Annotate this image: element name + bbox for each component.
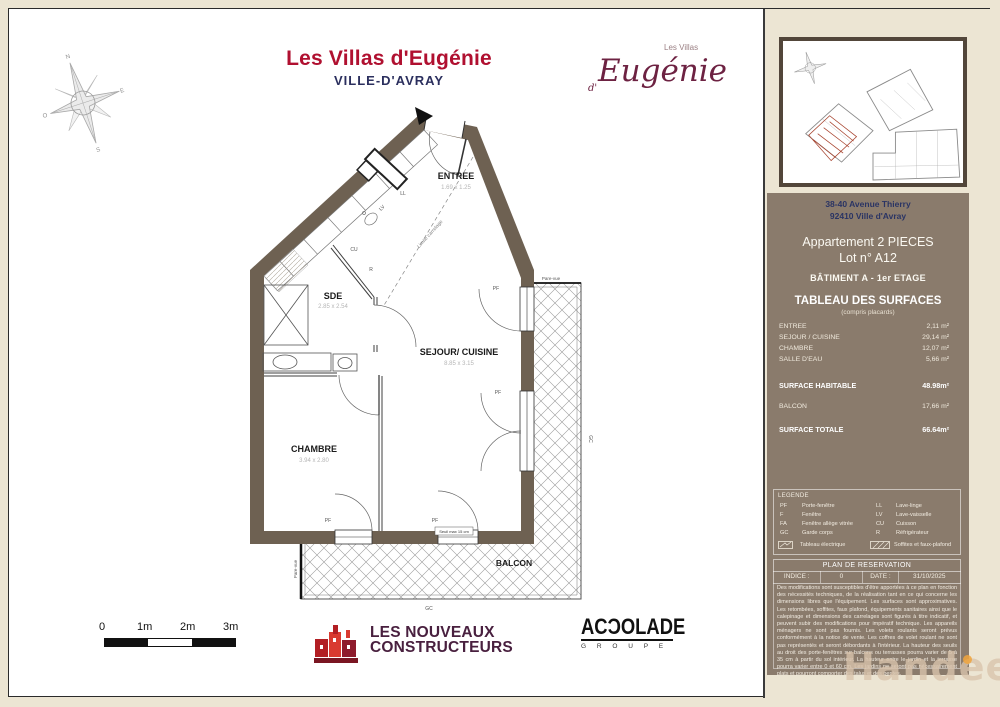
lnc-logo: LES NOUVEAUX CONSTRUCTEURS [312,621,542,677]
row-value: 5,66 m² [926,356,949,363]
accolade-wordmark: ACƆOLADE [581,615,677,641]
residence-title: Les Villas d'Eugénie [259,47,519,71]
room-sde: SDE [324,291,343,301]
accolade-groupe: G R O U P E [581,643,685,650]
cu-label: CU [350,247,358,253]
compass-n: N [65,54,71,61]
compass-s: S [96,147,102,154]
room-sejour: SEJOUR/ CUISINE [420,347,499,357]
lnc-buildings-icon [312,623,364,669]
date-value: 31/10/2025 [899,571,960,583]
building-floor: BÂTIMENT A - 1er ETAGE [767,273,969,283]
row-value: 12,07 m² [922,345,949,352]
room-entree-dims: 1.69 x 1.25 [441,185,471,191]
table-row-balcon: BALCON17,66 m² [779,403,949,410]
soffites-label: Soffites et faux-plafond [894,542,951,548]
scale-2m: 2m [180,621,195,633]
table-row: CHAMBRE12,07 m² [779,345,949,352]
table-row-habitable: SURFACE HABITABLE48.98m² [779,381,949,390]
address-line2: 92410 Ville d'Avray [767,211,969,223]
surface-table-subtitle: (compris placards) [767,309,969,316]
legend-abbr: FA [780,521,796,527]
seuil-label: Seuil max 15 cm [439,529,469,534]
gc-label-bottom: GC [425,606,433,612]
logo-les-villas: Les Villas [664,43,698,52]
address-line1: 38-40 Avenue Thierry [767,199,969,211]
legend: LEGENDE PFPorte-fenêtre FFenêtre FAFenêt… [773,489,961,555]
table-row: SEJOUR / CUISINE29,14 m² [779,334,949,341]
legend-title: LEGENDE [778,493,809,499]
lnc-line2: CONSTRUCTEURS [370,640,513,655]
logo-d: d' [588,83,597,94]
lnc-line1: LES NOUVEAUX [370,625,513,640]
row-label: SURFACE TOTALE [779,425,843,434]
city-subtitle: VILLE-D'AVRAY [259,73,519,88]
compass-o: O [42,113,49,120]
address-block: 38-40 Avenue Thierry 92410 Ville d'Avray [767,199,969,223]
site-compass-icon [790,48,830,88]
row-label: SEJOUR / CUISINE [779,334,840,341]
room-balcon: BALCON [496,558,532,568]
legend-label: Réfrigérateur [896,530,929,536]
row-value: 2,11 m² [926,323,949,330]
scale-bar: 0 1m 2m 3m [99,621,249,657]
legend-abbr: LL [876,503,892,509]
compass-e: E [119,88,125,95]
legend-abbr: CU [876,521,892,527]
indice-label: INDICE : [774,571,821,583]
legend-label: Fenêtre allège vitrée [802,521,853,527]
row-label: SALLE D'EAU [779,356,822,363]
indice-value: 0 [821,571,864,583]
legend-abbr: F [780,512,796,518]
room-sejour-dims: 8.85 x 3.15 [444,361,474,367]
soffites-icon [870,541,890,549]
ll-label: LL [400,191,406,197]
row-label: BALCON [779,403,807,410]
site-plan-drawing [783,41,963,183]
apartment-type: Appartement 2 PIECES [767,235,969,251]
site-plan-thumbnail [779,37,967,187]
room-chambre: CHAMBRE [291,444,337,454]
pf-label-3: PF [325,518,331,524]
row-label: SURFACE HABITABLE [779,381,856,390]
row-value: 66.64m² [922,425,949,434]
scale-1m: 1m [137,621,152,633]
apartment-block: Appartement 2 PIECES Lot n° A12 [767,235,969,266]
info-panel: 38-40 Avenue Thierry 92410 Ville d'Avray… [767,193,969,675]
legend-label: Garde corps [802,530,833,536]
legend-abbr: GC [780,530,796,536]
row-label: ENTREE [779,323,807,330]
logo-name: Eugénie [598,53,727,89]
pare-vue-top: Pare-vue [542,276,561,281]
tableau-electrique-icon [778,541,793,549]
title-block: Les Villas d'Eugénie VILLE-D'AVRAY [259,47,519,88]
gc-label-right: GC [587,435,593,443]
scale-bar-segments [104,638,236,647]
room-chambre-dims: 3.94 x 2.80 [299,458,329,464]
legend-abbr: LV [876,512,892,518]
pf-label-4: PF [432,518,438,524]
legend-label: Fenêtre [802,512,821,518]
table-row-totale: SURFACE TOTALE66.64m² [779,425,949,434]
watermark: Handeed [843,645,1000,689]
compass-rose: N E S O [41,45,125,157]
legend-label: Cuisson [896,521,916,527]
accolade-logo: ACƆOLADE G R O U P E [581,615,685,650]
table-row: SALLE D'EAU5,66 m² [779,356,949,363]
legend-label: Lave-linge [896,503,922,509]
room-sde-dims: 2.85 x 2.54 [318,304,348,310]
table-row: ENTREE2,11 m² [779,323,949,330]
legend-abbr: PF [780,503,796,509]
row-value: 29,14 m² [922,334,949,341]
surface-table-title: TABLEAU DES SURFACES [767,295,969,307]
watermark-dot [963,655,972,664]
row-label: CHAMBRE [779,345,813,352]
eugenie-logo: Les Villas d' Eugénie [584,39,739,119]
pf-label-1: PF [493,286,499,292]
sheet-frame: N E S O Les Villas d'Eugénie VILLE-D'AVR… [8,8,990,697]
pf-label-2: PF [495,390,501,396]
lot-number: Lot n° A12 [767,251,969,267]
floor-plan-sheet: N E S O Les Villas d'Eugénie VILLE-D'AVR… [0,0,1000,707]
row-value: 17,66 m² [922,403,949,410]
pare-vue-left: Pare-vue [293,559,298,578]
date-label: DATE : [863,571,898,583]
legend-abbr: R [876,530,892,536]
row-value: 48.98m² [922,381,949,390]
scale-3m: 3m [223,621,238,633]
legend-label: Porte-fenêtre [802,503,835,509]
floor-plan-drawing: Seuil max 15 cm [233,107,605,619]
room-entree: ENTREE [438,171,475,181]
scale-0: 0 [99,621,105,633]
tableau-electrique-label: Tableau électrique [800,542,845,548]
r-label: R [369,267,373,273]
legend-label: Lave-vaisselle [896,512,931,518]
